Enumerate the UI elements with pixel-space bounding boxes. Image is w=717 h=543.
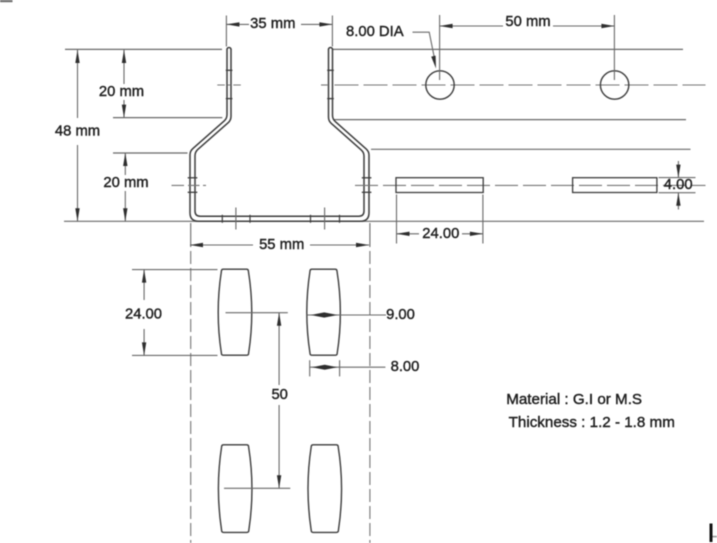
svg-text:48 mm: 48 mm [55, 124, 100, 140]
svg-text:35 mm: 35 mm [250, 16, 295, 32]
svg-text:55 mm: 55 mm [259, 237, 304, 253]
svg-text:24.00: 24.00 [125, 307, 162, 323]
svg-text:9.00: 9.00 [386, 307, 415, 323]
svg-text:50 mm: 50 mm [505, 14, 550, 30]
svg-text:20 mm: 20 mm [99, 84, 144, 100]
svg-text:4.00: 4.00 [664, 177, 693, 193]
svg-text:50: 50 [271, 387, 287, 403]
svg-text:8.00 DIA: 8.00 DIA [346, 24, 404, 40]
svg-text:20 mm: 20 mm [103, 175, 148, 191]
svg-text:24.00: 24.00 [422, 226, 459, 242]
svg-text:8.00: 8.00 [391, 359, 420, 375]
svg-text:Thickness : 1.2 - 1.8 mm: Thickness : 1.2 - 1.8 mm [509, 414, 675, 431]
svg-text:Material : G.I or M.S: Material : G.I or M.S [506, 391, 642, 408]
